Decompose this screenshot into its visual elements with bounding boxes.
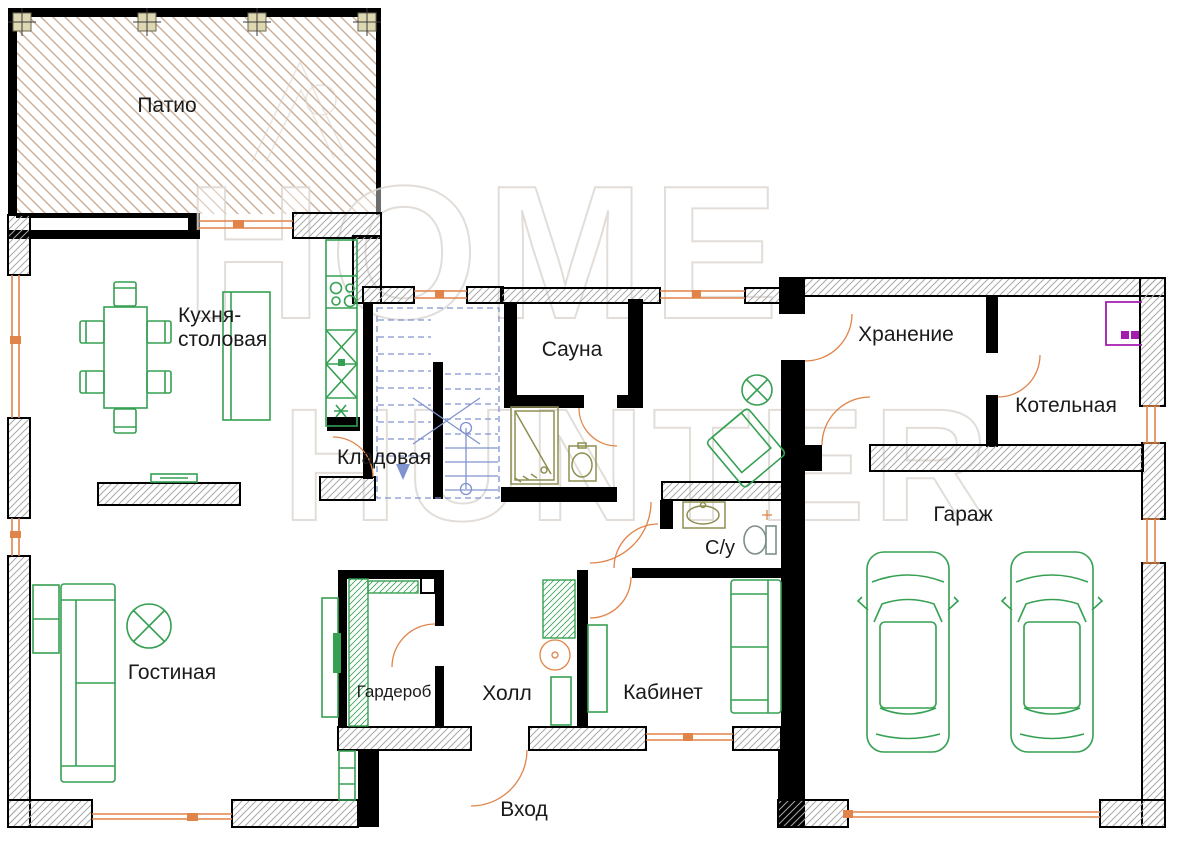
room-label-hall: Холл: [482, 682, 532, 705]
dining-chair: [114, 409, 136, 433]
pouf: [540, 640, 570, 670]
window: [1143, 519, 1160, 563]
room-label-sauna: Сауна: [542, 338, 603, 361]
floor-plan-drawing: HOME HUNTER: [0, 0, 1200, 860]
room-label-boiler-room: Котельная: [1015, 394, 1117, 417]
boiler-unit: [1106, 302, 1142, 345]
window: [1143, 406, 1160, 443]
room-label-living-room: Гостиная: [128, 661, 216, 684]
desk: [588, 625, 607, 712]
dining-chair: [80, 321, 104, 343]
door-arc: [805, 314, 852, 361]
room-label-pantry: Кладовая: [337, 446, 431, 469]
room-label-patio: Патио: [137, 94, 196, 117]
tv-panel: [151, 474, 197, 482]
window: [10, 275, 21, 418]
tv-wall: [98, 483, 240, 505]
dining-chair: [80, 371, 104, 393]
room-label-entrance: Вход: [500, 798, 548, 821]
garage-door: [843, 810, 1100, 818]
window: [646, 733, 733, 741]
dining-chair: [147, 371, 171, 393]
living-cabinet: [322, 598, 341, 717]
room-label-study: Кабинет: [623, 681, 703, 704]
coat-closet: [543, 580, 575, 638]
room-label-storage: Хранение: [858, 323, 954, 346]
door-arc: [590, 577, 631, 618]
car: [1002, 552, 1102, 752]
hall-cabinet: [551, 677, 571, 725]
dining-chair: [147, 321, 171, 343]
wardrobe-rails: [349, 577, 435, 726]
door-arc: [392, 624, 435, 667]
side-shelf: [33, 585, 59, 653]
room-label-garage: Гараж: [933, 503, 992, 526]
watermark-home: HOME: [185, 147, 787, 359]
dining-chair: [114, 282, 136, 306]
car: [858, 552, 958, 752]
dining-table: [80, 282, 171, 433]
room-label-kitchen-line2: столовая: [178, 328, 267, 351]
ceiling-light-icon: [127, 604, 171, 648]
room-label-wardrobe: Гардероб: [357, 682, 432, 701]
window: [10, 518, 21, 556]
room-label-kitchen-line1: Кухня-: [178, 304, 241, 327]
tv-icon: [333, 633, 341, 673]
floor-plan: HOME HUNTER: [0, 0, 1200, 860]
window: [92, 813, 232, 821]
study-sofa: [731, 580, 781, 713]
door-arc: [998, 355, 1040, 397]
corner-shelf: [339, 751, 355, 800]
living-sofa: [61, 584, 115, 782]
room-label-bathroom: С/у: [705, 537, 735, 559]
